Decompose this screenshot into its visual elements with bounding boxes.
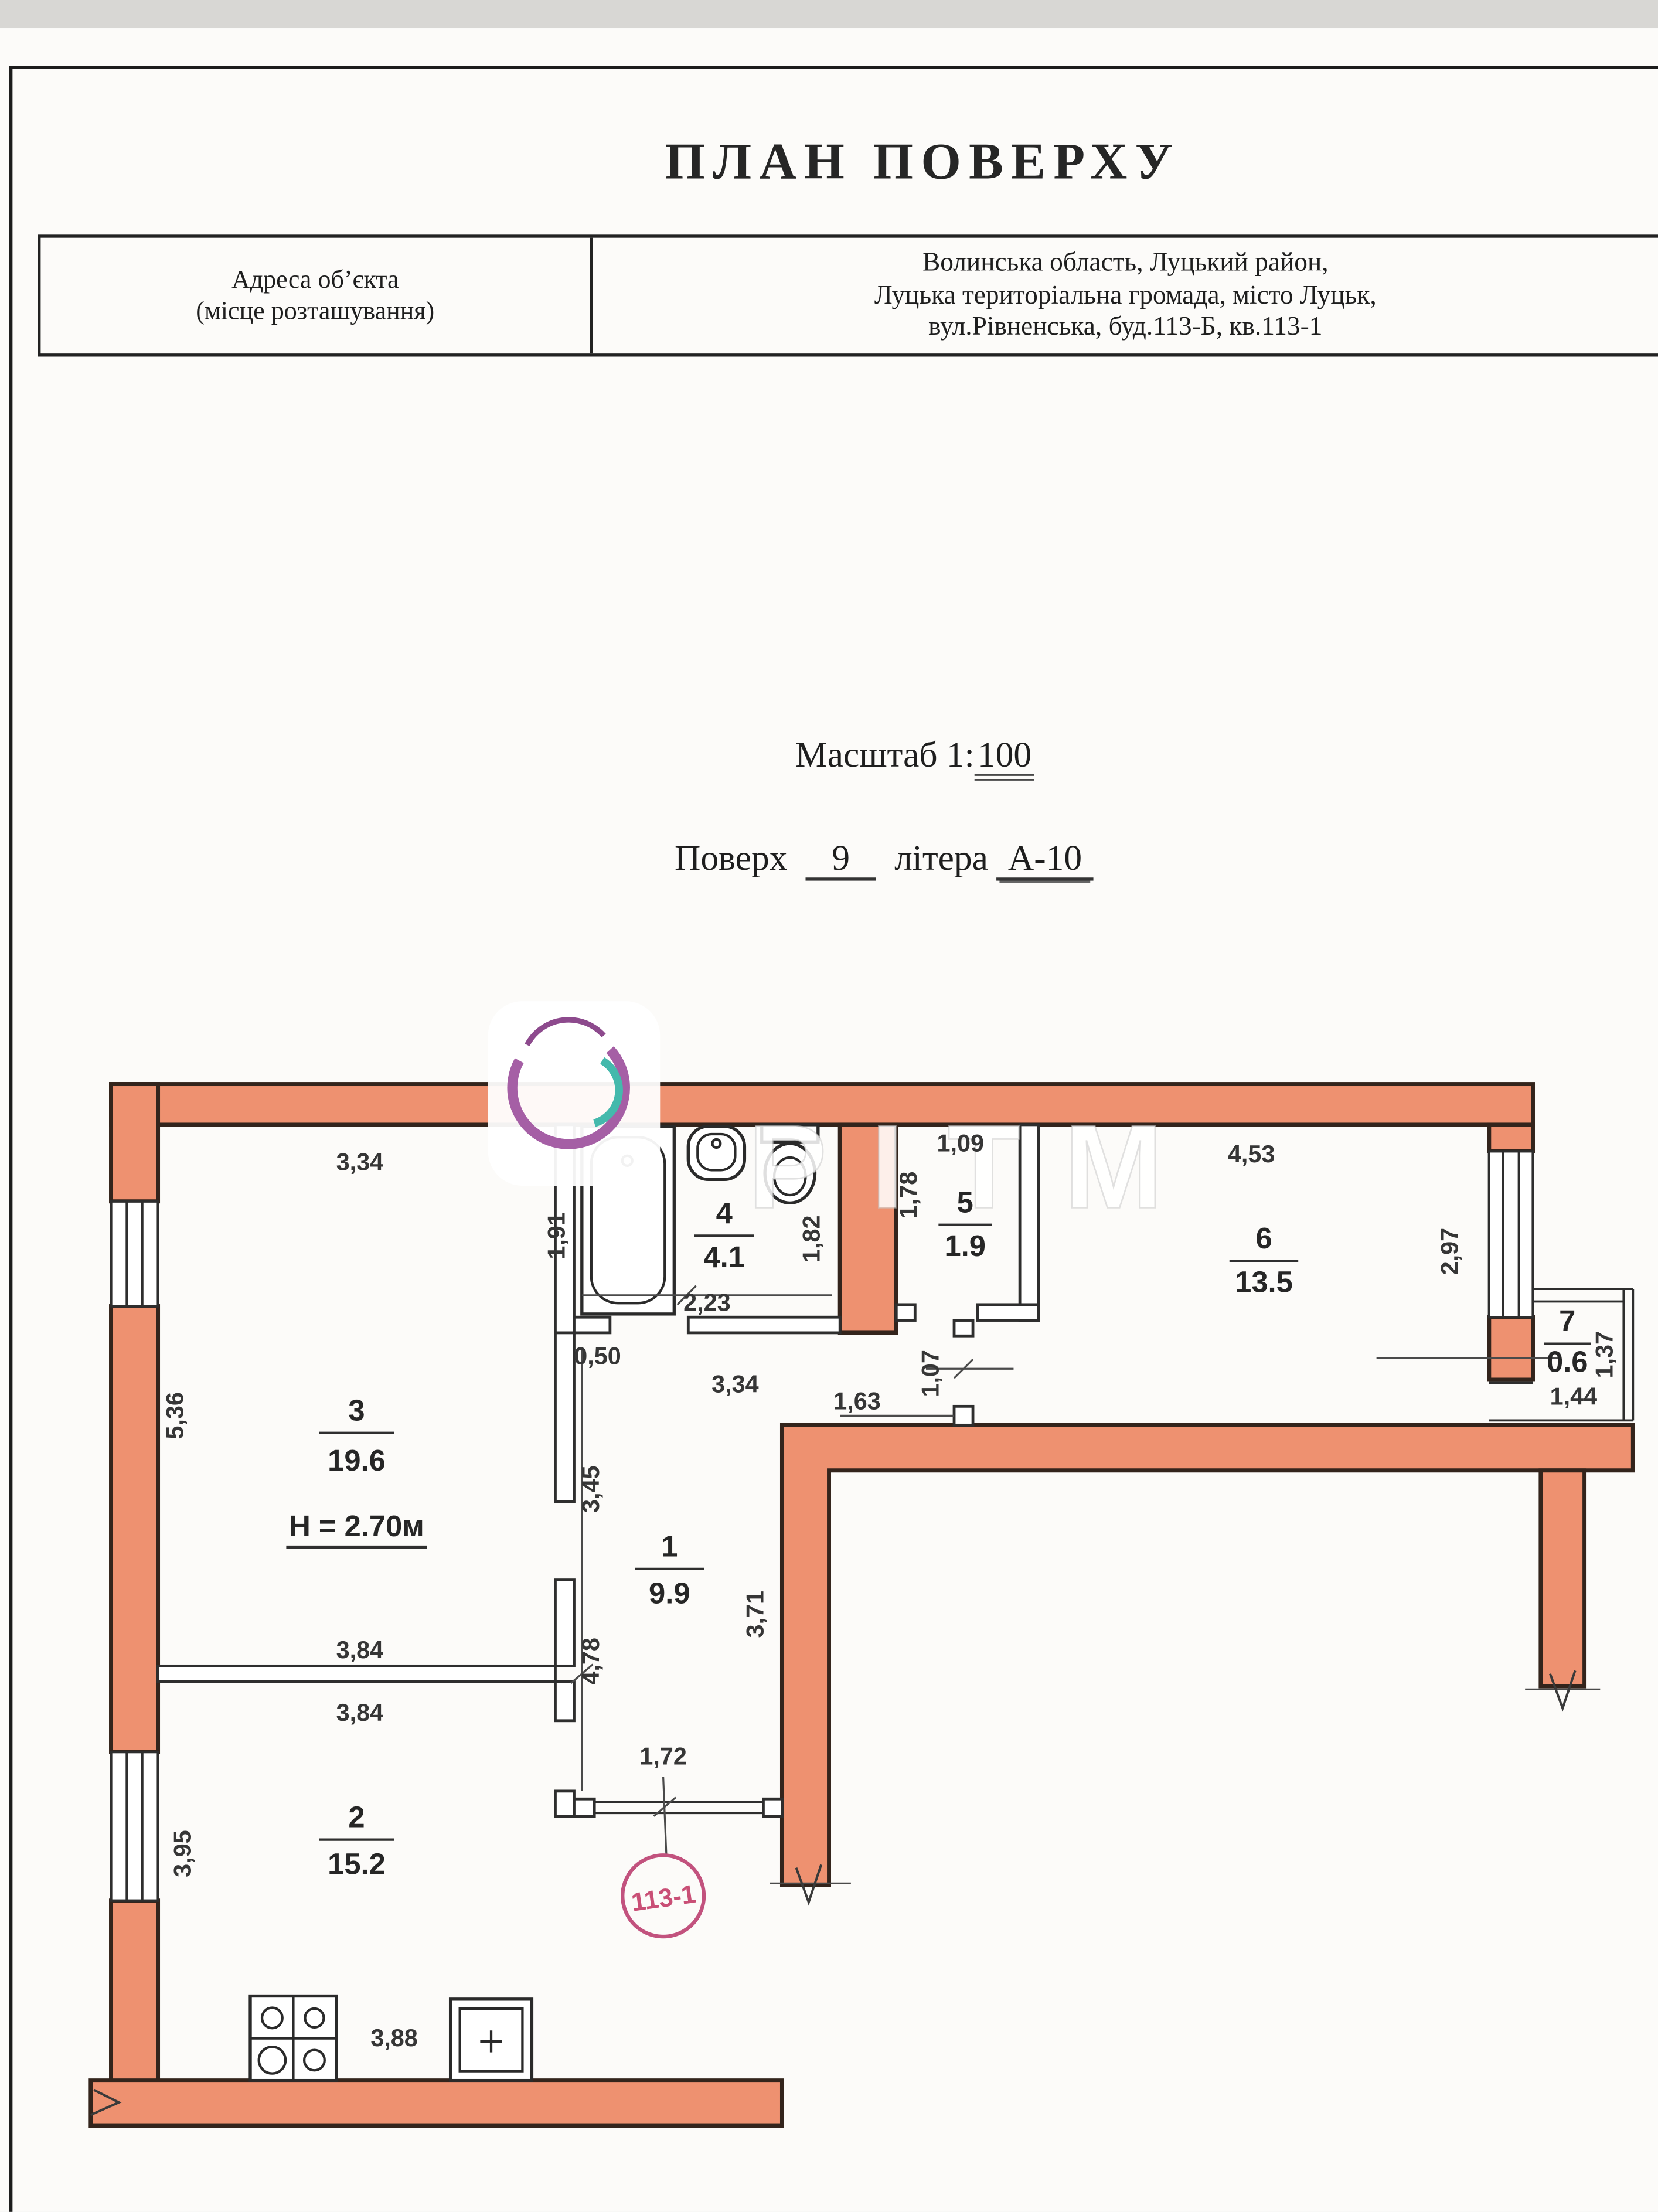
partition-hall-left-seg2	[555, 1580, 574, 1666]
wall-right-seg1	[1489, 1125, 1533, 1151]
dimension-label: 4,53	[1228, 1141, 1275, 1168]
washbasin	[688, 1127, 744, 1180]
floor-plan-drawing: 113-1 РІТМ 3,345,361,912,231,821,091,784…	[0, 0, 1658, 2212]
dimension-label: 1,09	[937, 1129, 984, 1156]
wall-left-seg1	[111, 1084, 158, 1202]
dimension-label: 4,78	[577, 1638, 604, 1684]
room-number-label: 4	[716, 1196, 733, 1230]
room-area-label: 9.9	[649, 1577, 690, 1610]
dimension-label: 1,72	[639, 1743, 687, 1770]
wall-hall-right-and-band	[782, 1425, 1633, 1885]
wall-stairwell-right	[1541, 1471, 1585, 1686]
dimension-label: 2,97	[1436, 1228, 1463, 1275]
dimension-label: 0,50	[574, 1342, 621, 1369]
wall-left-seg2	[111, 1306, 158, 1752]
dimension-label: 3,45	[577, 1466, 604, 1513]
partition-room3-room2	[158, 1666, 556, 1682]
dimension-label: 1,63	[833, 1388, 881, 1415]
partition-bath-bottom-right	[688, 1317, 840, 1333]
room-number-label: 1	[661, 1530, 678, 1563]
badge-leader	[663, 1777, 666, 1855]
partition-hall-left-seg1	[555, 1333, 574, 1502]
room-number-label: 3	[348, 1393, 365, 1427]
room-area-label: 0.6	[1547, 1345, 1588, 1379]
dimension-label: 1,82	[798, 1216, 825, 1263]
partition-room2-hall-seg2	[555, 1791, 574, 1816]
stove	[250, 1996, 336, 2081]
dimension-label: 3,84	[336, 1636, 384, 1663]
document-page: ПЛАН ПОВЕРХУ Адреса об’єкта (місце розта…	[0, 0, 1658, 2212]
room-area-label: 1.9	[944, 1229, 985, 1262]
window-room3	[111, 1202, 158, 1306]
dimension-label: 3,88	[370, 2024, 418, 2051]
badge-number: 113-1	[629, 1880, 697, 1917]
dimension-label: 5,36	[161, 1392, 188, 1439]
wall-room6-door-post-bottom	[954, 1406, 973, 1425]
apartment-badge: 113-1	[617, 1850, 709, 1942]
dimension-label: 2,23	[683, 1289, 731, 1316]
window-room2	[111, 1752, 158, 1901]
fridge	[451, 1999, 532, 2081]
dimension-label: 1,07	[917, 1350, 944, 1397]
dimension-label: 1,44	[1550, 1383, 1598, 1410]
dimension-label: 1,37	[1591, 1331, 1618, 1379]
dimension-label: 1,91	[543, 1212, 570, 1260]
partition-room2-hall-seg1	[555, 1682, 574, 1721]
wall-right-pier	[1489, 1317, 1533, 1380]
dimension-label: 3,34	[336, 1148, 384, 1175]
wall-room6-door-post-top	[954, 1321, 973, 1336]
ceiling-height-label: Н = 2.70м	[289, 1509, 424, 1543]
exterior-walls	[91, 1084, 1633, 2126]
wall-bottom-kitchen	[91, 2081, 782, 2126]
entrance-post-right	[763, 1799, 782, 1816]
dimension-label: 3,71	[741, 1591, 768, 1638]
room-area-label: 13.5	[1235, 1265, 1293, 1299]
window-room6	[1489, 1151, 1533, 1317]
room-number-label: 7	[1559, 1304, 1575, 1338]
room-area-label: 19.6	[328, 1444, 386, 1477]
dimension-label: 3,95	[169, 1830, 196, 1877]
partition-room5-bottom-right	[978, 1305, 1039, 1321]
dimension-label: 3,34	[711, 1370, 759, 1397]
entrance-post-left	[574, 1799, 594, 1816]
room-area-label: 15.2	[328, 1847, 386, 1880]
dimension-label: 3,84	[336, 1699, 384, 1726]
room-area-label: 4.1	[703, 1240, 744, 1274]
watermark-letters: РІТМ	[748, 1100, 1207, 1233]
room-number-label: 6	[1255, 1221, 1272, 1255]
room-number-label: 5	[957, 1185, 973, 1219]
partition-bath-bottom-left	[574, 1317, 610, 1333]
room-number-label: 2	[348, 1800, 365, 1833]
partition-room5-bottom-left	[896, 1305, 915, 1321]
dimension-label: 1,78	[895, 1172, 922, 1219]
